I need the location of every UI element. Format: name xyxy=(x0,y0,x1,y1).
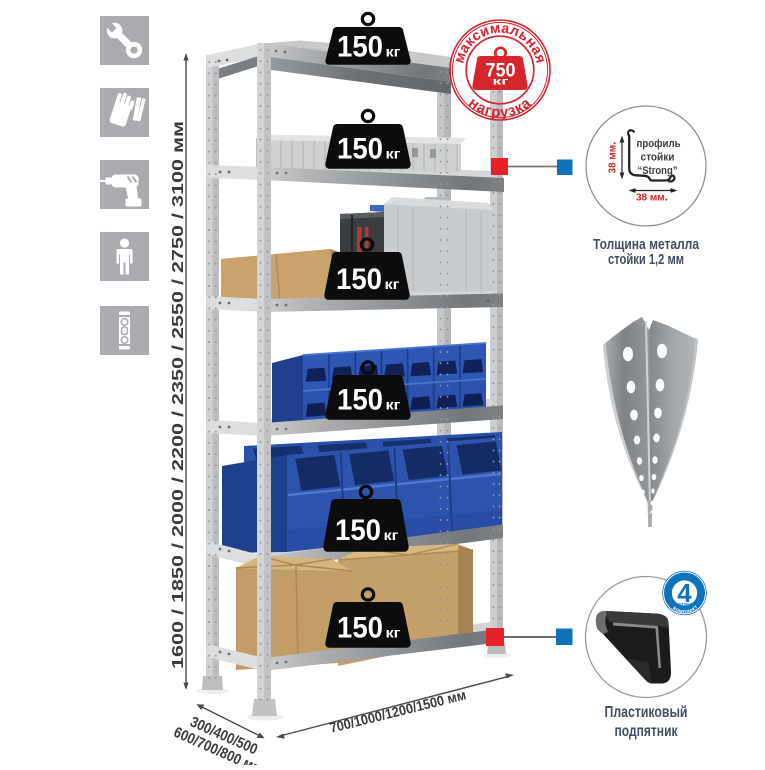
svg-text:150: 150 xyxy=(337,611,383,644)
svg-text:подпятник: подпятник xyxy=(615,723,678,740)
svg-text:кг: кг xyxy=(386,398,401,413)
svg-text:1600 / 1850 / 2000 / 2200 / 23: 1600 / 1850 / 2000 / 2200 / 2350 / 2550 … xyxy=(170,121,187,669)
svg-text:стойки 1,2 мм: стойки 1,2 мм xyxy=(608,251,684,268)
svg-text:Пластиковый: Пластиковый xyxy=(605,704,688,721)
svg-text:150: 150 xyxy=(337,133,383,166)
svg-text:150: 150 xyxy=(337,30,383,63)
svg-text:штуки: штуки xyxy=(678,601,691,606)
svg-text:кг: кг xyxy=(384,528,399,543)
svg-text:кг: кг xyxy=(386,147,401,162)
svg-text:профиль: профиль xyxy=(637,138,681,150)
svg-text:кг: кг xyxy=(493,76,510,88)
svg-text:кг: кг xyxy=(386,625,401,640)
svg-text:кг: кг xyxy=(385,277,400,292)
svg-text:кг: кг xyxy=(386,44,401,59)
svg-text:“Strong”: “Strong” xyxy=(638,165,678,177)
svg-text:150: 150 xyxy=(335,514,381,547)
svg-text:38 мм.: 38 мм. xyxy=(605,141,619,173)
svg-text:150: 150 xyxy=(337,384,383,417)
svg-text:стойки: стойки xyxy=(641,152,675,164)
svg-text:150: 150 xyxy=(336,263,382,296)
svg-text:38 мм.: 38 мм. xyxy=(636,190,668,204)
